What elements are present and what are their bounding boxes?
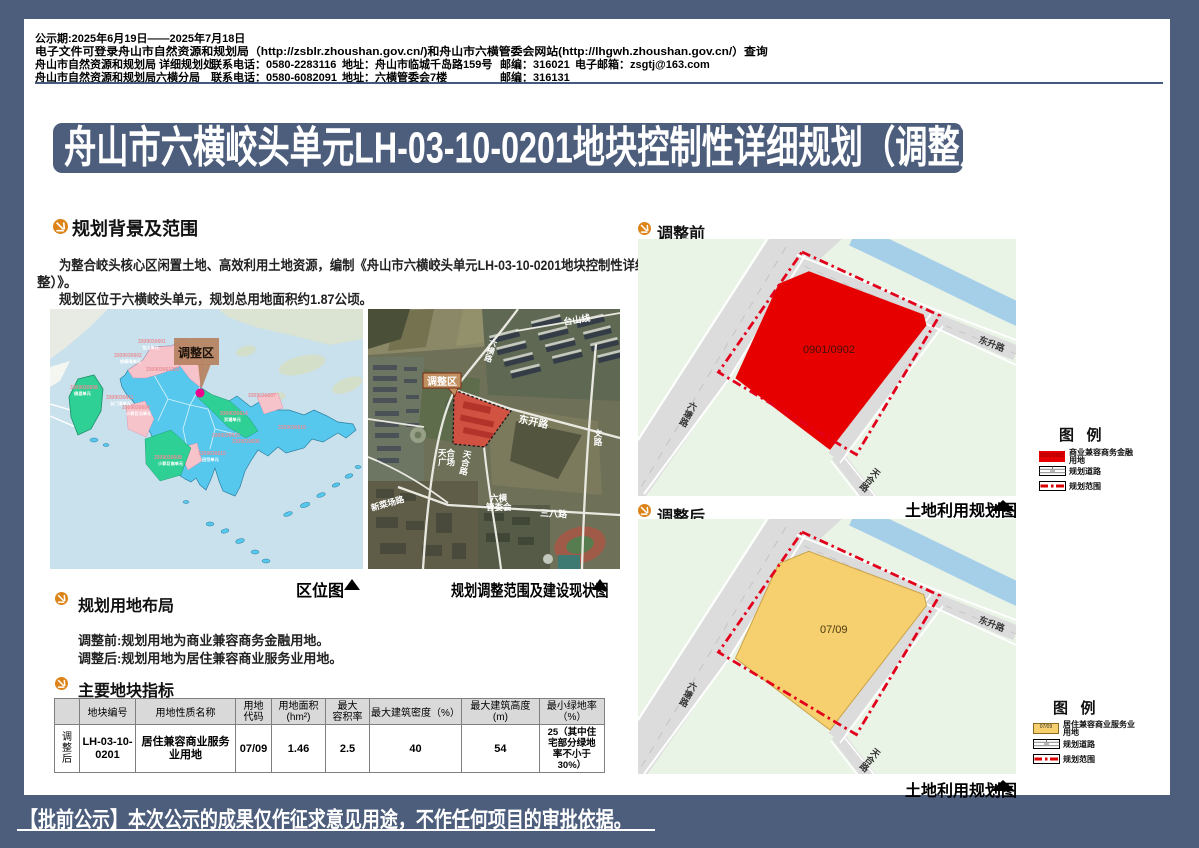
svg-text:3309030607: 3309030607 xyxy=(248,393,276,399)
svg-text:田岙单元: 田岙单元 xyxy=(202,456,220,463)
svg-text:07/09: 07/09 xyxy=(820,624,848,636)
svg-text:龙山单元: 龙山单元 xyxy=(142,344,160,351)
svg-text:棕榈湾单元: 棕榈湾单元 xyxy=(119,358,142,365)
svg-text:330903061202: 330903061202 xyxy=(146,367,180,373)
svg-text:文路: 文路 xyxy=(593,428,603,447)
svg-text:三八路: 三八路 xyxy=(540,507,569,519)
svg-text:广场: 广场 xyxy=(438,457,456,467)
svg-text:双塘单元: 双塘单元 xyxy=(224,416,242,423)
svg-text:小郭巨南单元: 小郭巨南单元 xyxy=(158,460,184,467)
svg-text:小郭巨北单元: 小郭巨北单元 xyxy=(126,410,152,417)
svg-text:调整区: 调整区 xyxy=(178,345,214,360)
svg-text:3309030616: 3309030616 xyxy=(278,425,306,431)
svg-text:3309030606: 3309030606 xyxy=(232,439,260,445)
svg-text:0901/0902: 0901/0902 xyxy=(803,344,855,356)
svg-text:佛渡单元: 佛渡单元 xyxy=(73,390,92,397)
svg-text:台门港单元: 台门港单元 xyxy=(110,400,132,407)
svg-text:管委会: 管委会 xyxy=(486,502,512,512)
svg-text:调整区: 调整区 xyxy=(427,375,457,388)
